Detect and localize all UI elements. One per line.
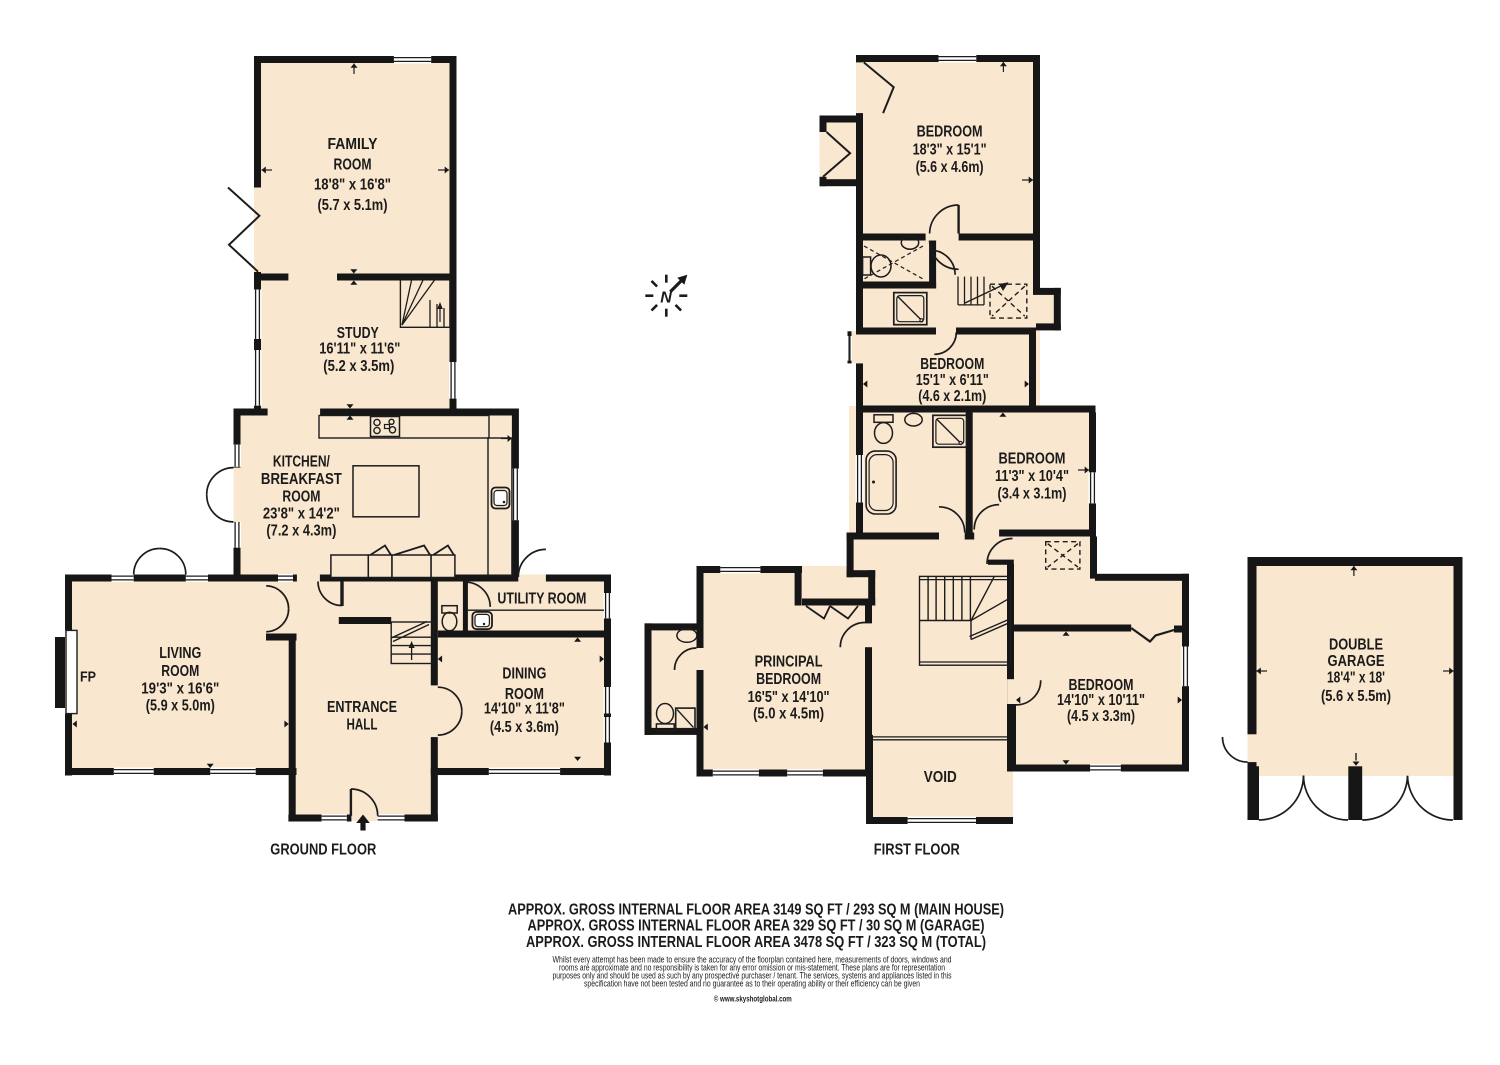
svg-text:(3.4 x 3.1m): (3.4 x 3.1m) [998,486,1067,503]
svg-text:16'5" x 14'10": 16'5" x 14'10" [748,689,830,706]
svg-text:(5.0 x 4.5m): (5.0 x 4.5m) [753,706,824,723]
svg-text:(5.6 x 4.6m): (5.6 x 4.6m) [916,159,984,176]
svg-text:18'8" x 16'8": 18'8" x 16'8" [314,177,391,194]
svg-text:(5.2 x 3.5m): (5.2 x 3.5m) [323,358,394,375]
svg-text:(5.9 x 5.0m): (5.9 x 5.0m) [146,698,215,715]
svg-text:(7.2 x 4.3m): (7.2 x 4.3m) [266,523,336,540]
svg-text:(4.5 x 3.6m): (4.5 x 3.6m) [490,719,559,736]
svg-text:BEDROOM: BEDROOM [917,124,983,141]
svg-text:APPROX. GROSS INTERNAL FLOOR A: APPROX. GROSS INTERNAL FLOOR AREA 329 SQ… [528,918,985,935]
svg-text:18'4" x 18': 18'4" x 18' [1327,670,1385,687]
svg-text:BEDROOM: BEDROOM [920,356,984,373]
svg-text:DOUBLE: DOUBLE [1329,636,1383,653]
svg-text:N: N [660,290,672,307]
svg-text:ROOM: ROOM [282,489,320,506]
svg-text:© www.skyshotglobal.com: © www.skyshotglobal.com [714,994,792,1004]
svg-text:GROUND FLOOR: GROUND FLOOR [270,842,376,859]
svg-text:(4.6 x 2.1m): (4.6 x 2.1m) [918,388,986,405]
svg-text:FIRST FLOOR: FIRST FLOOR [874,842,960,859]
svg-text:LIVING: LIVING [159,645,201,662]
svg-text:18'3" x 15'1": 18'3" x 15'1" [913,141,987,158]
svg-text:ENTRANCE: ENTRANCE [327,699,397,716]
svg-text:(5.6 x 5.5m): (5.6 x 5.5m) [1321,688,1391,705]
svg-text:STUDY: STUDY [337,325,380,342]
svg-text:14'10" x 10'11": 14'10" x 10'11" [1057,692,1145,709]
svg-text:APPROX. GROSS INTERNAL FLOOR A: APPROX. GROSS INTERNAL FLOOR AREA 3149 S… [508,902,1004,919]
svg-text:VOID: VOID [924,769,957,786]
svg-text:HALL: HALL [347,717,378,734]
svg-text:DINING: DINING [502,666,546,683]
svg-text:23'8" x 14'2": 23'8" x 14'2" [263,506,340,523]
svg-text:16'11" x 11'6": 16'11" x 11'6" [319,341,400,358]
svg-text:PRINCIPAL: PRINCIPAL [755,654,823,671]
svg-text:ROOM: ROOM [334,157,372,174]
svg-text:specification have not been te: specification have not been tested and n… [584,979,920,989]
svg-text:(5.7 x 5.1m): (5.7 x 5.1m) [318,197,388,214]
svg-text:APPROX. GROSS INTERNAL FLOOR A: APPROX. GROSS INTERNAL FLOOR AREA 3478 S… [526,934,986,951]
svg-text:KITCHEN/: KITCHEN/ [273,454,331,471]
svg-text:BREAKFAST: BREAKFAST [261,471,342,488]
svg-text:BEDROOM: BEDROOM [999,451,1066,468]
svg-text:ROOM: ROOM [161,663,199,680]
svg-text:(4.5 x 3.3m): (4.5 x 3.3m) [1067,708,1135,725]
svg-text:FAMILY: FAMILY [328,136,379,153]
svg-text:GARAGE: GARAGE [1328,653,1385,670]
svg-text:BEDROOM: BEDROOM [756,671,821,688]
svg-text:19'3" x 16'6": 19'3" x 16'6" [141,681,219,698]
svg-text:14'10" x 11'8": 14'10" x 11'8" [484,701,565,718]
svg-text:FP: FP [80,668,96,685]
svg-text:UTILITY ROOM: UTILITY ROOM [497,591,586,608]
svg-text:11'3" x 10'4": 11'3" x 10'4" [995,468,1069,485]
svg-text:15'1" x 6'11": 15'1" x 6'11" [916,372,989,389]
